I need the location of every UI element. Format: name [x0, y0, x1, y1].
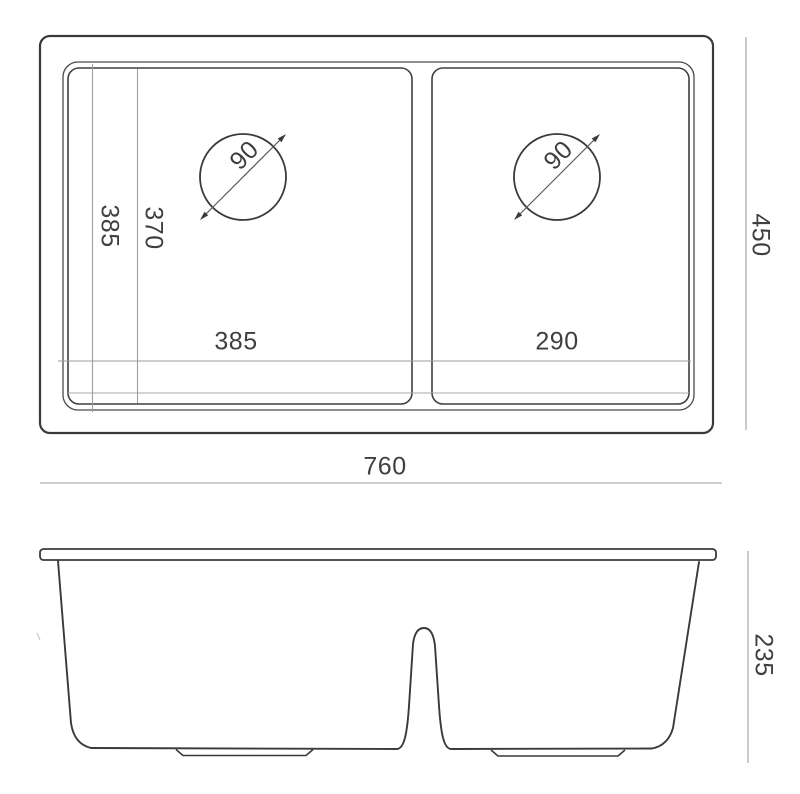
- sink-technical-drawing: 90 90 385 370 385 290 450 760: [0, 0, 800, 794]
- dim-label-bowl-inner-depth: 370: [140, 206, 168, 249]
- front-right-drain-strip: [491, 750, 625, 756]
- dim-label-bowl-front-depth: 385: [96, 204, 124, 247]
- dim-label-left-bowl-width: 385: [214, 328, 257, 356]
- front-view: 235: [37, 549, 778, 763]
- top-view: 90 90 385 370 385 290 450 760: [40, 36, 775, 483]
- dim-label-overall-width: 760: [363, 453, 406, 481]
- front-bowl-outline: [58, 561, 699, 749]
- front-rim-flange: [40, 549, 716, 560]
- dim-label-right-bowl-width: 290: [535, 328, 578, 356]
- front-left-drain-strip: [176, 750, 313, 756]
- dim-label-bowl-height: 235: [750, 633, 778, 676]
- dim-label-overall-depth: 450: [747, 213, 775, 256]
- stray-tick-mark: [37, 633, 40, 640]
